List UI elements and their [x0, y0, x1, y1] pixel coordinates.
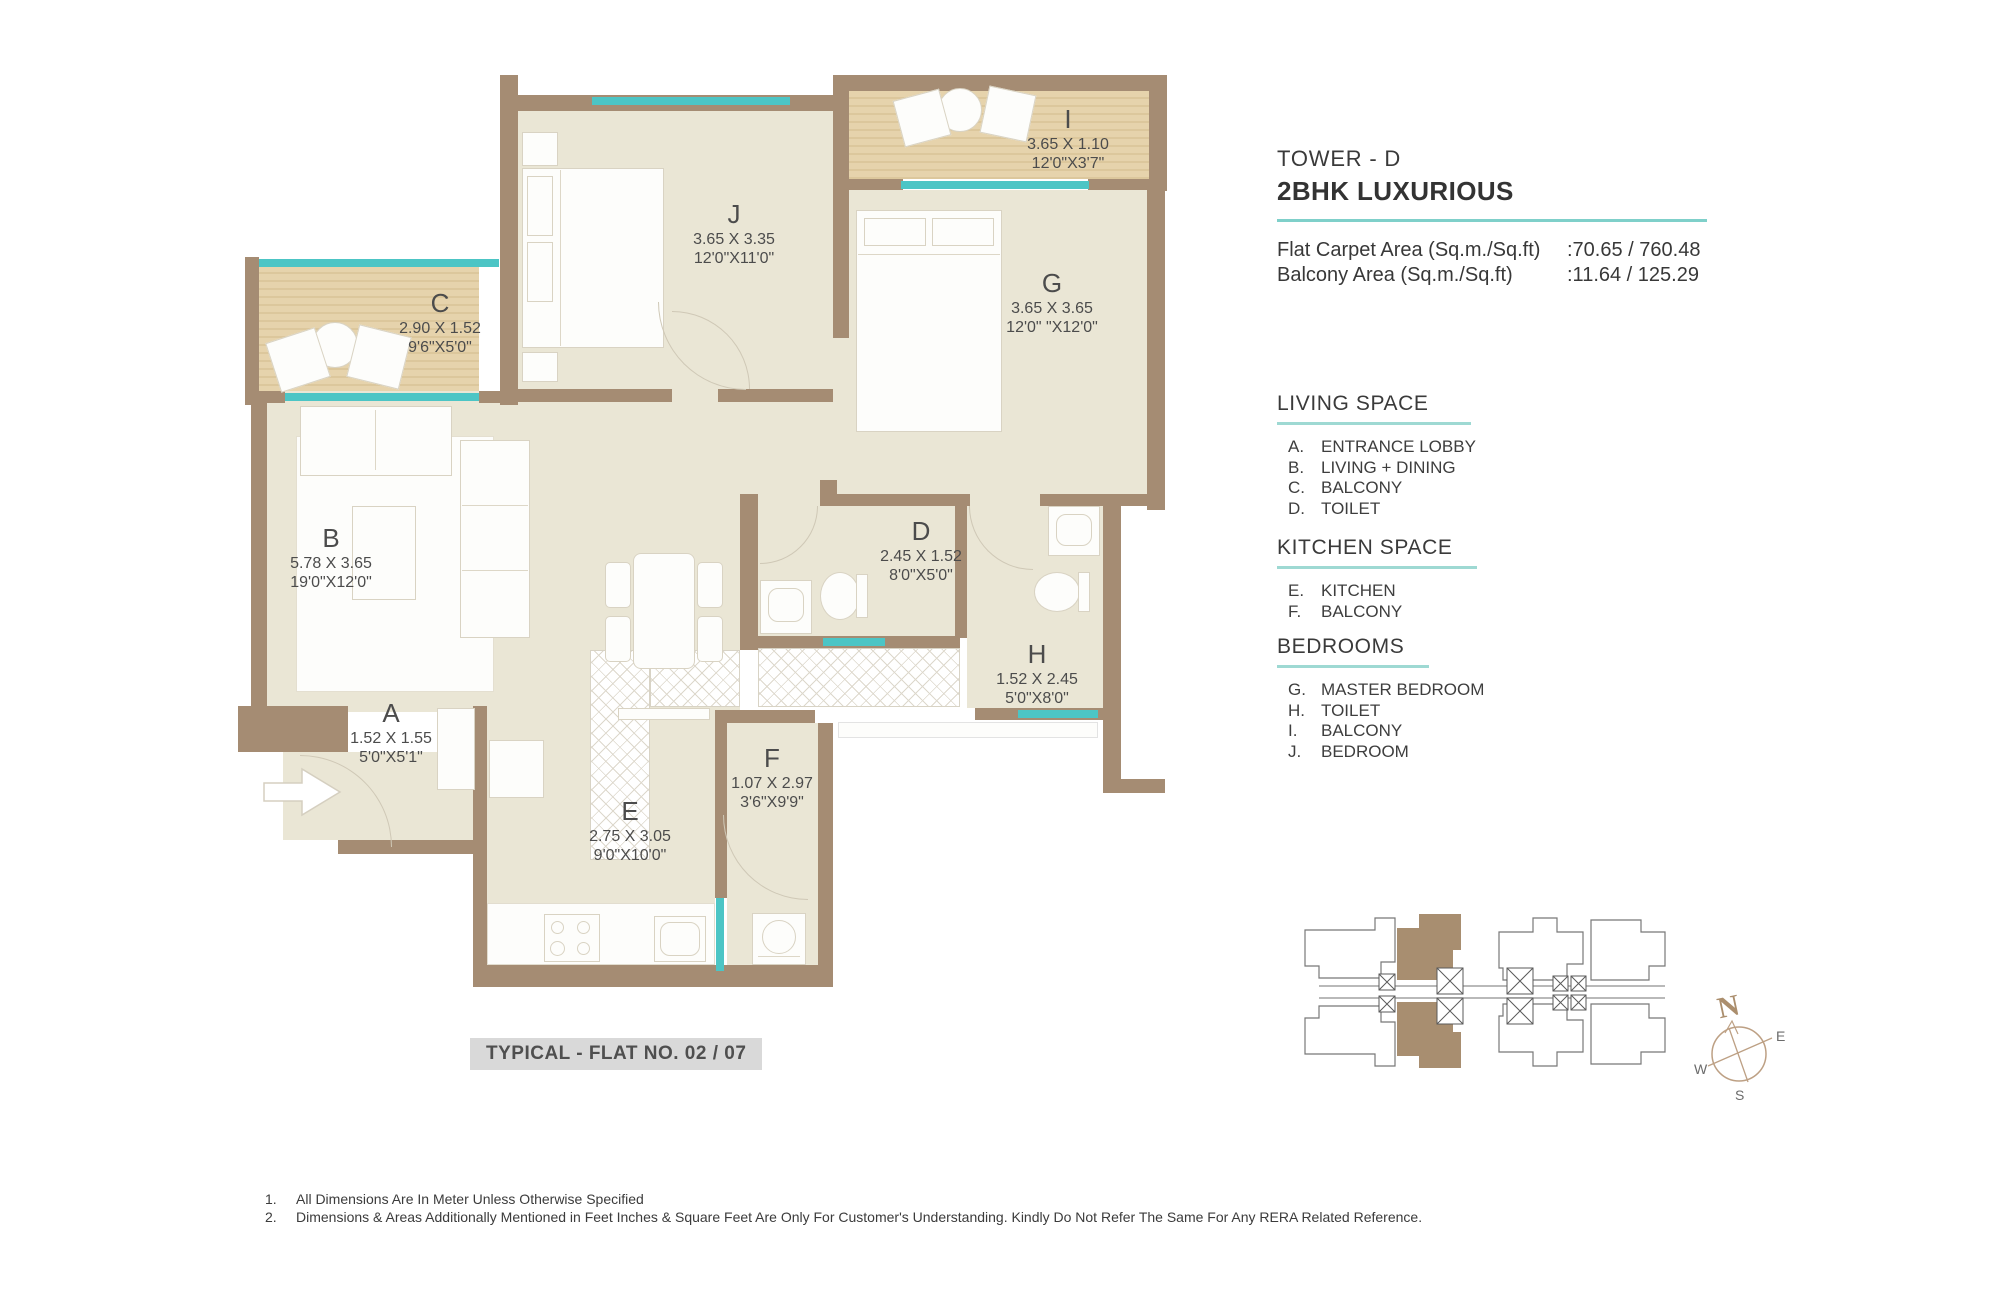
burner: [550, 941, 565, 956]
dining-chair: [697, 616, 723, 662]
section-underline: [1277, 665, 1429, 668]
room-label-a: A 1.52 X 1.55 5'0"X5'1": [350, 698, 432, 768]
wall: [1088, 179, 1149, 190]
wash-basin-bowl: [1056, 514, 1092, 546]
room-size-ft: 12'0"X3'7": [1027, 154, 1109, 173]
room-size-m: 1.52 X 2.45: [996, 670, 1078, 689]
area-value: :11.64 / 125.29: [1567, 263, 1699, 288]
service-ledge: [838, 722, 1098, 738]
wall: [500, 75, 518, 405]
room-size-ft: 3'6"X9'9": [731, 793, 813, 812]
kitchen-sink-bowl: [660, 922, 700, 956]
room-letter: B: [290, 523, 372, 554]
legend-bedrooms: BEDROOMS G. MASTER BEDROOM H. TOILET I. …: [1277, 635, 1717, 762]
footnote-number: 2.: [265, 1208, 296, 1226]
toilet-tank: [856, 574, 868, 618]
wall: [820, 494, 970, 506]
room-letter: H: [996, 639, 1078, 670]
wall: [473, 965, 833, 987]
legend-item: G. MASTER BEDROOM: [1277, 680, 1717, 701]
wall: [251, 403, 267, 713]
room-letter: J: [693, 199, 775, 230]
legend-item: C. BALCONY: [1277, 478, 1717, 499]
pillow: [932, 218, 994, 246]
legend-item: D. TOILET: [1277, 499, 1717, 520]
room-size-ft: 19'0"X12'0": [290, 573, 372, 592]
legend-item: E. KITCHEN: [1277, 581, 1717, 602]
legend-key: G.: [1277, 680, 1321, 701]
dining-chair: [605, 616, 631, 662]
room-size-ft: 9'6"X5'0": [399, 338, 481, 357]
pillow: [527, 176, 553, 236]
plan-title: TYPICAL - FLAT NO. 02 / 07: [470, 1038, 762, 1070]
wall: [1040, 494, 1147, 506]
footnotes: 1. All Dimensions Are In Meter Unless Ot…: [265, 1190, 1422, 1226]
compass-icon: N E W S: [1692, 986, 1792, 1106]
area-label: Flat Carpet Area (Sq.m./Sq.ft): [1277, 238, 1567, 263]
g-door-gap: [833, 338, 849, 494]
legend-item: F. BALCONY: [1277, 602, 1717, 623]
legend-key: C.: [1277, 478, 1321, 499]
room-letter: F: [731, 743, 813, 774]
room-size-m: 3.65 X 1.10: [1027, 135, 1109, 154]
bedside-table: [522, 352, 558, 382]
room-size-m: 2.75 X 3.05: [589, 827, 671, 846]
legend-label: LIVING + DINING: [1321, 458, 1456, 479]
stove: [544, 914, 600, 962]
room-size-ft: 12'0"X11'0": [693, 249, 775, 268]
legend-kitchen-space: KITCHEN SPACE E. KITCHEN F. BALCONY: [1277, 536, 1717, 622]
compass-e: E: [1776, 1028, 1785, 1044]
kitchen-shelf: [618, 708, 710, 720]
burner: [577, 942, 590, 955]
wall: [1103, 779, 1165, 793]
h-door-gap: [967, 494, 1040, 506]
area-row: Flat Carpet Area (Sq.m./Sq.ft) :70.65 / …: [1277, 238, 1737, 263]
legend-label: MASTER BEDROOM: [1321, 680, 1484, 701]
room-label-h: H 1.52 X 2.45 5'0"X8'0": [996, 639, 1078, 709]
burner: [551, 921, 564, 934]
room-size-m: 5.78 X 3.65: [290, 554, 372, 573]
legend-key: A.: [1277, 437, 1321, 458]
dining-table: [633, 553, 695, 669]
d-door-gap: [758, 494, 820, 506]
key-plan: [1285, 898, 1705, 1103]
legend-key: J.: [1277, 742, 1321, 763]
room-letter: G: [1006, 268, 1098, 299]
title-underline: [1277, 219, 1707, 222]
wall: [715, 710, 815, 723]
wash-basin-bowl: [768, 588, 804, 622]
room-size-m: 2.45 X 1.52: [880, 547, 962, 566]
washing-machine-drum: [762, 920, 796, 954]
wall: [715, 723, 727, 898]
wall: [1149, 75, 1167, 191]
room-label-c: C 2.90 X 1.52 9'6"X5'0": [399, 288, 481, 358]
legend-item: I. BALCONY: [1277, 721, 1717, 742]
legend-item: H. TOILET: [1277, 701, 1717, 722]
room-label-g: G 3.65 X 3.65 12'0" "X12'0": [1006, 268, 1098, 338]
room-letter: E: [589, 796, 671, 827]
sofa-line: [375, 410, 376, 470]
section-underline: [1277, 566, 1477, 569]
pillow: [527, 242, 553, 302]
bed-line: [858, 254, 1000, 255]
window: [285, 393, 479, 401]
wall: [1147, 190, 1165, 510]
sofa-line: [462, 570, 528, 571]
room-letter: A: [350, 698, 432, 729]
legend-living-space: LIVING SPACE A. ENTRANCE LOBBY B. LIVING…: [1277, 392, 1717, 519]
legend-label: TOILET: [1321, 499, 1380, 520]
washing-machine-line: [758, 956, 800, 957]
footnote-number: 1.: [265, 1190, 296, 1208]
fridge: [489, 740, 544, 798]
wall: [833, 190, 849, 338]
legend-item: B. LIVING + DINING: [1277, 458, 1717, 479]
room-label-i: I 3.65 X 1.10 12'0"X3'7": [1027, 104, 1109, 174]
compass-s: S: [1735, 1087, 1744, 1103]
area-value: :70.65 / 760.48: [1567, 238, 1700, 263]
legend-label: BALCONY: [1321, 721, 1402, 742]
legend-key: E.: [1277, 581, 1321, 602]
legend-section-title: LIVING SPACE: [1277, 392, 1717, 416]
area-row: Balcony Area (Sq.m./Sq.ft) :11.64 / 125.…: [1277, 263, 1737, 288]
toilet-wc: [1034, 572, 1080, 612]
room-letter: D: [880, 516, 962, 547]
room-letter: I: [1027, 104, 1109, 135]
wall: [245, 257, 259, 405]
bedside-table: [522, 132, 558, 166]
legend-label: BALCONY: [1321, 478, 1402, 499]
room-size-ft: 5'0"X5'1": [350, 748, 432, 767]
section-underline: [1277, 422, 1471, 425]
room-size-ft: 8'0"X5'0": [880, 566, 962, 585]
wall: [833, 75, 849, 191]
wall: [740, 494, 758, 650]
tower-title: TOWER - D: [1277, 146, 1401, 172]
footnote-text: All Dimensions Are In Meter Unless Other…: [296, 1190, 644, 1208]
room-size-m: 1.07 X 2.97: [731, 774, 813, 793]
footnote: 1. All Dimensions Are In Meter Unless Ot…: [265, 1190, 1422, 1208]
legend-label: BALCONY: [1321, 602, 1402, 623]
toilet-tank: [1078, 572, 1090, 612]
footnote-text: Dimensions & Areas Additionally Mentione…: [296, 1208, 1422, 1226]
area-summary: Flat Carpet Area (Sq.m./Sq.ft) :70.65 / …: [1277, 238, 1737, 288]
window: [259, 259, 499, 267]
room-label-e: E 2.75 X 3.05 9'0"X10'0": [589, 796, 671, 866]
dining-chair: [697, 562, 723, 608]
legend-key: F.: [1277, 602, 1321, 623]
wall: [479, 391, 518, 403]
room-size-ft: 5'0"X8'0": [996, 689, 1078, 708]
compass-w: W: [1694, 1061, 1708, 1077]
sofa-line: [462, 505, 528, 506]
room-label-b: B 5.78 X 3.65 19'0"X12'0": [290, 523, 372, 593]
entry-arrow-icon: [262, 766, 344, 818]
burner: [577, 921, 590, 934]
legend-section-title: BEDROOMS: [1277, 635, 1717, 659]
room-label-d: D 2.45 X 1.52 8'0"X5'0": [880, 516, 962, 586]
wardrobe: [437, 708, 475, 790]
floor-plan-sheet: A 1.52 X 1.55 5'0"X5'1" B 5.78 X 3.65 19…: [0, 0, 2000, 1300]
compass-n: N: [1715, 988, 1743, 1025]
window: [1018, 710, 1098, 718]
legend-item: J. BEDROOM: [1277, 742, 1717, 763]
window: [823, 638, 885, 646]
legend-item: A. ENTRANCE LOBBY: [1277, 437, 1717, 458]
wall: [818, 723, 833, 973]
room-size-m: 3.65 X 3.35: [693, 230, 775, 249]
legend-key: I.: [1277, 721, 1321, 742]
bed-line: [560, 170, 561, 346]
flat-type-title: 2BHK LUXURIOUS: [1277, 176, 1514, 207]
room-label-f: F 1.07 X 2.97 3'6"X9'9": [731, 743, 813, 813]
legend-label: KITCHEN: [1321, 581, 1396, 602]
legend-label: ENTRANCE LOBBY: [1321, 437, 1476, 458]
area-label: Balcony Area (Sq.m./Sq.ft): [1277, 263, 1567, 288]
room-letter: C: [399, 288, 481, 319]
sofa-three-seat: [460, 440, 530, 638]
pillow: [864, 218, 926, 246]
room-size-m: 1.52 X 1.55: [350, 729, 432, 748]
sofa-two-seat: [300, 406, 452, 476]
wall: [238, 706, 348, 752]
room-size-m: 2.90 X 1.52: [399, 319, 481, 338]
legend-label: TOILET: [1321, 701, 1380, 722]
toilet-wc: [820, 572, 860, 620]
wall: [845, 179, 903, 190]
room-size-ft: 9'0"X10'0": [589, 846, 671, 865]
window: [716, 898, 724, 971]
wall: [473, 706, 487, 980]
legend-key: D.: [1277, 499, 1321, 520]
legend-label: BEDROOM: [1321, 742, 1409, 763]
room-size-ft: 12'0" "X12'0": [1006, 318, 1098, 337]
window: [901, 181, 1089, 189]
kitchen-platform: [758, 648, 960, 707]
dining-chair: [605, 562, 631, 608]
legend-key: B.: [1277, 458, 1321, 479]
legend-key: H.: [1277, 701, 1321, 722]
room-size-m: 3.65 X 3.65: [1006, 299, 1098, 318]
window: [592, 97, 790, 105]
room-label-j: J 3.65 X 3.35 12'0"X11'0": [693, 199, 775, 269]
wall: [518, 389, 672, 402]
wall: [1103, 506, 1121, 793]
wall: [718, 389, 833, 402]
legend-section-title: KITCHEN SPACE: [1277, 536, 1717, 560]
footnote: 2. Dimensions & Areas Additionally Menti…: [265, 1208, 1422, 1226]
j-door-gap: [672, 389, 718, 402]
